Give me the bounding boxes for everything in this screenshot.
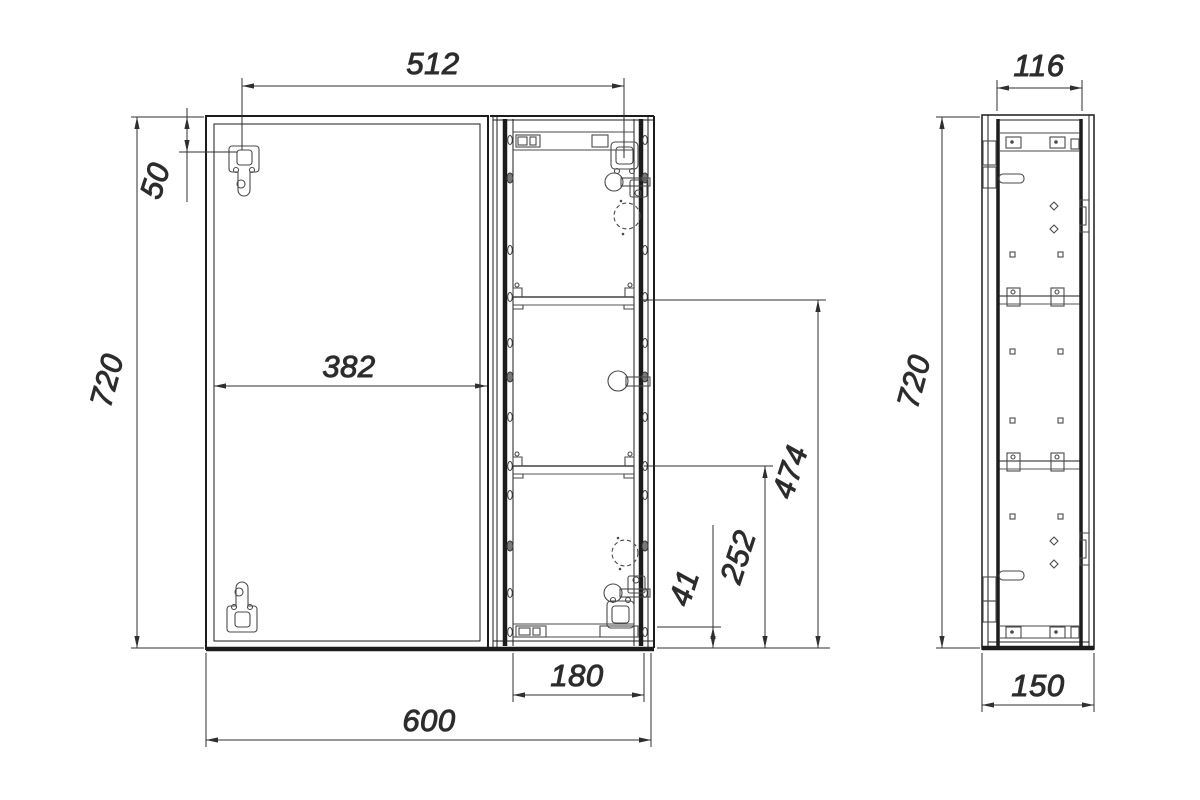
cabinet-carcass	[206, 116, 654, 649]
shelf-pin-holes-left	[507, 136, 513, 637]
dim-label-inner-depth: 116	[1014, 48, 1065, 83]
side-wall-fittings	[1010, 202, 1063, 568]
side-shelf-lower	[999, 453, 1080, 471]
top-rail	[513, 132, 634, 150]
dim-label-door-width: 382	[322, 349, 375, 384]
bottom-rail	[513, 624, 638, 637]
side-hinge-plate-bottom	[983, 571, 1024, 622]
dim-inner-depth: 116	[997, 48, 1082, 111]
front-view	[206, 116, 654, 649]
technical-drawing-page: 512 50 720 382 600 180 41 25	[0, 0, 1200, 800]
cabinet-dimension-drawing: 512 50 720 382 600 180 41 25	[0, 0, 1200, 800]
shelf-upper	[513, 283, 634, 309]
door-hinge-bottom-left	[227, 582, 257, 632]
dim-hinge-span: 512	[242, 46, 624, 158]
dim-hinge-offset-top: 50	[133, 108, 237, 203]
dim-label-shelf-section-width: 180	[550, 658, 603, 693]
dim-label-hinge-span: 512	[406, 46, 459, 81]
side-top-rail	[999, 133, 1080, 151]
dim-label-upper-shelf-height: 474	[765, 441, 815, 502]
side-shelf-upper	[999, 288, 1080, 306]
dim-label-side-height: 720	[890, 351, 938, 411]
dim-label-overall-depth: 150	[1011, 668, 1064, 703]
dim-label-hinge-offset-top: 50	[133, 158, 177, 203]
side-view	[982, 115, 1094, 649]
side-bottom-rail	[999, 626, 1080, 638]
dim-label-bottom-rail-offset: 41	[662, 565, 706, 610]
dim-label-front-height: 720	[83, 350, 131, 410]
dim-bottom-rail-offset: 41	[657, 525, 721, 648]
side-panel-outline	[982, 115, 1094, 649]
dim-shelf-section-width: 180	[513, 653, 644, 702]
door-hinge-top-left	[229, 146, 259, 196]
dim-label-overall-width: 600	[402, 703, 455, 738]
dim-door-width: 382	[214, 349, 487, 386]
shelf-lower	[513, 452, 634, 478]
dim-side-height: 720	[890, 117, 980, 648]
dim-overall-depth: 150	[982, 653, 1094, 712]
dim-lower-shelf-height: 252	[644, 466, 773, 648]
dim-label-lower-shelf-height: 252	[713, 526, 763, 588]
